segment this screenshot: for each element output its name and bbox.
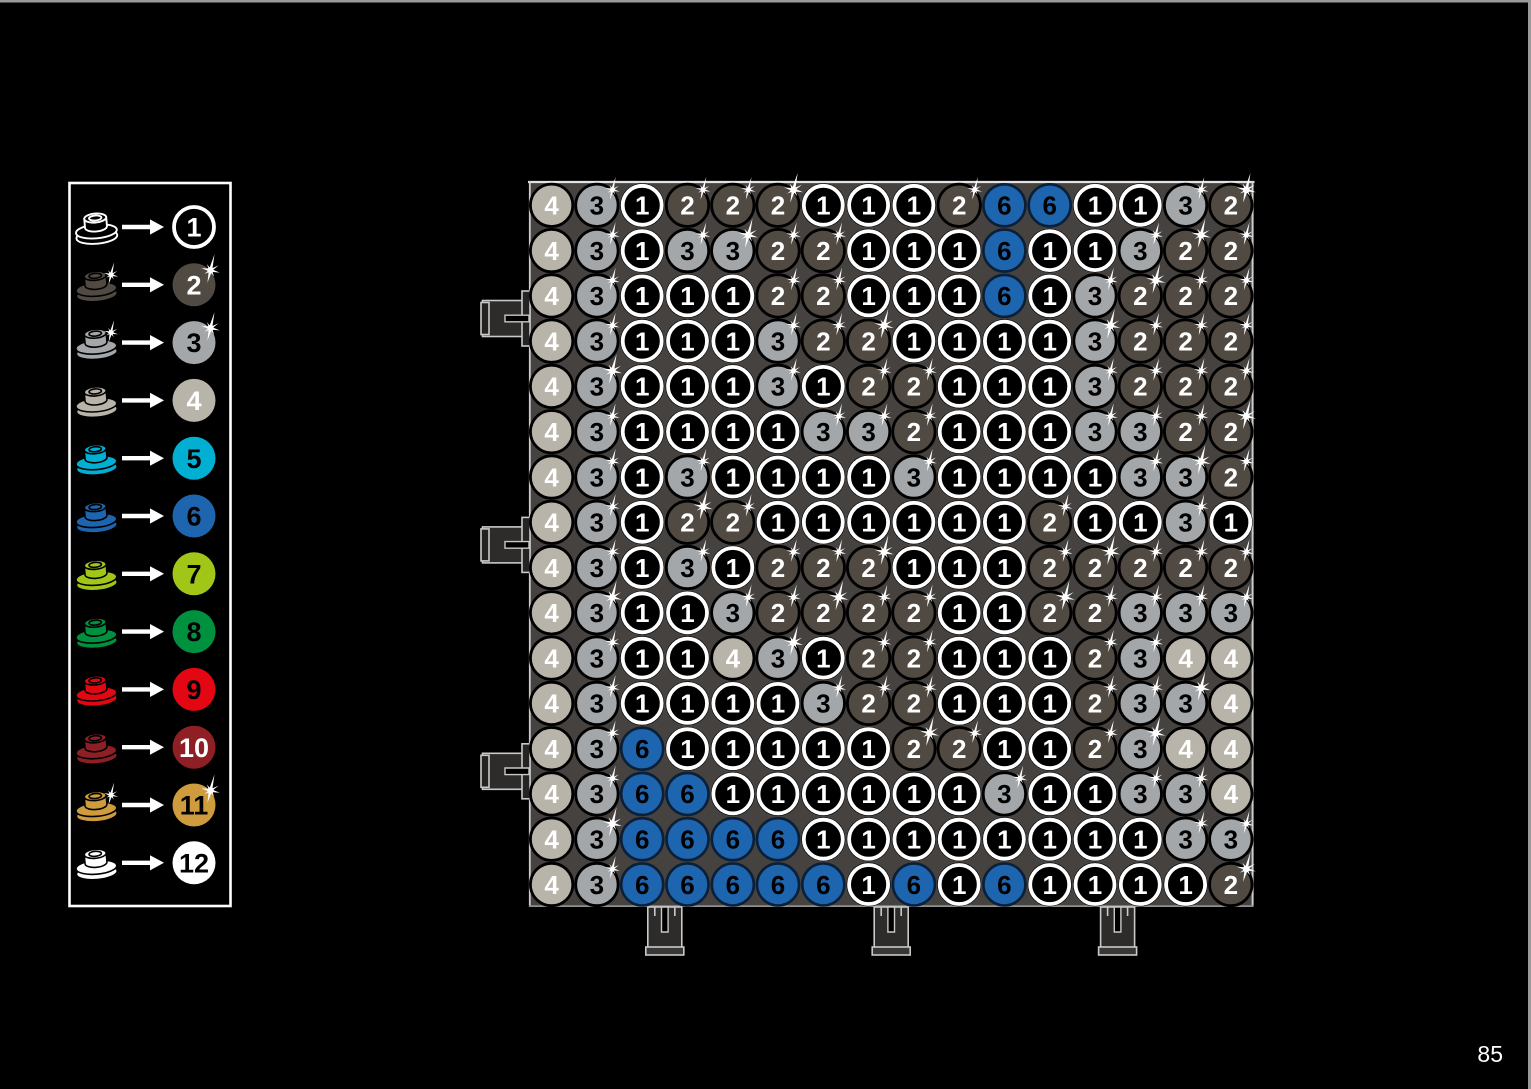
svg-text:2: 2: [861, 689, 875, 719]
svg-text:1: 1: [635, 372, 649, 402]
svg-text:1: 1: [997, 462, 1011, 492]
svg-text:3: 3: [590, 417, 604, 447]
svg-text:6: 6: [186, 502, 201, 532]
svg-text:1: 1: [907, 281, 921, 311]
svg-text:2: 2: [1178, 281, 1192, 311]
svg-text:3: 3: [1178, 191, 1192, 221]
svg-text:1: 1: [1088, 191, 1102, 221]
svg-text:3: 3: [771, 643, 785, 673]
svg-text:3: 3: [1178, 779, 1192, 809]
svg-text:4: 4: [544, 825, 559, 855]
svg-text:1: 1: [771, 417, 785, 447]
svg-text:4: 4: [544, 870, 559, 900]
svg-text:1: 1: [997, 326, 1011, 356]
svg-text:1: 1: [952, 643, 966, 673]
svg-text:1: 1: [952, 281, 966, 311]
svg-text:3: 3: [680, 553, 694, 583]
svg-text:6: 6: [635, 870, 649, 900]
svg-text:1: 1: [861, 191, 875, 221]
svg-text:1: 1: [1042, 236, 1056, 266]
svg-text:1: 1: [1133, 191, 1147, 221]
svg-text:1: 1: [635, 462, 649, 492]
svg-text:4: 4: [544, 553, 559, 583]
svg-text:1: 1: [680, 372, 694, 402]
svg-text:3: 3: [1133, 689, 1147, 719]
svg-text:1: 1: [680, 281, 694, 311]
svg-text:1: 1: [997, 553, 1011, 583]
svg-text:1: 1: [816, 734, 830, 764]
svg-text:1: 1: [952, 326, 966, 356]
svg-text:1: 1: [1042, 281, 1056, 311]
svg-text:1: 1: [635, 326, 649, 356]
svg-text:2: 2: [1133, 326, 1147, 356]
svg-text:1: 1: [771, 689, 785, 719]
svg-text:2: 2: [1133, 372, 1147, 402]
svg-text:3: 3: [590, 462, 604, 492]
svg-text:1: 1: [635, 281, 649, 311]
svg-text:2: 2: [1224, 372, 1238, 402]
svg-text:2: 2: [1224, 281, 1238, 311]
svg-text:1: 1: [635, 598, 649, 628]
svg-text:4: 4: [1224, 643, 1239, 673]
svg-text:1: 1: [635, 236, 649, 266]
svg-text:2: 2: [1224, 870, 1238, 900]
svg-text:6: 6: [997, 191, 1011, 221]
svg-text:1: 1: [997, 734, 1011, 764]
svg-text:2: 2: [680, 508, 694, 538]
svg-text:3: 3: [726, 236, 740, 266]
svg-text:9: 9: [186, 675, 201, 705]
svg-text:3: 3: [1133, 734, 1147, 764]
svg-text:4: 4: [544, 191, 559, 221]
svg-text:1: 1: [997, 417, 1011, 447]
svg-text:2: 2: [907, 689, 921, 719]
svg-text:3: 3: [1178, 508, 1192, 538]
svg-text:3: 3: [1178, 825, 1192, 855]
svg-text:2: 2: [816, 326, 830, 356]
svg-text:4: 4: [544, 689, 559, 719]
svg-text:1: 1: [907, 553, 921, 583]
svg-text:1: 1: [1042, 462, 1056, 492]
svg-text:1: 1: [816, 643, 830, 673]
svg-text:3: 3: [590, 508, 604, 538]
svg-text:2: 2: [816, 553, 830, 583]
svg-text:6: 6: [997, 236, 1011, 266]
svg-text:1: 1: [816, 825, 830, 855]
svg-text:2: 2: [1133, 553, 1147, 583]
svg-text:6: 6: [726, 870, 740, 900]
svg-text:1: 1: [952, 508, 966, 538]
svg-text:1: 1: [861, 734, 875, 764]
svg-text:3: 3: [771, 326, 785, 356]
svg-text:1: 1: [726, 417, 740, 447]
svg-text:4: 4: [544, 734, 559, 764]
svg-text:2: 2: [186, 270, 201, 300]
svg-text:1: 1: [1042, 372, 1056, 402]
svg-text:1: 1: [1133, 508, 1147, 538]
svg-text:3: 3: [1178, 689, 1192, 719]
svg-text:4: 4: [544, 779, 559, 809]
svg-text:3: 3: [590, 825, 604, 855]
svg-text:3: 3: [1133, 779, 1147, 809]
svg-text:6: 6: [997, 870, 1011, 900]
svg-text:2: 2: [1042, 598, 1056, 628]
svg-text:6: 6: [907, 870, 921, 900]
svg-text:2: 2: [816, 598, 830, 628]
svg-text:3: 3: [1178, 462, 1192, 492]
svg-text:3: 3: [1133, 598, 1147, 628]
svg-text:4: 4: [186, 386, 201, 416]
svg-text:3: 3: [680, 462, 694, 492]
svg-text:4: 4: [544, 372, 559, 402]
svg-text:1: 1: [907, 779, 921, 809]
svg-text:3: 3: [907, 462, 921, 492]
svg-text:2: 2: [771, 191, 785, 221]
svg-text:2: 2: [771, 236, 785, 266]
svg-text:2: 2: [771, 553, 785, 583]
svg-text:2: 2: [726, 191, 740, 221]
svg-text:2: 2: [816, 236, 830, 266]
svg-text:2: 2: [1042, 553, 1056, 583]
svg-text:6: 6: [1042, 191, 1056, 221]
svg-text:3: 3: [1133, 236, 1147, 266]
svg-text:1: 1: [186, 213, 201, 243]
svg-text:2: 2: [680, 191, 694, 221]
svg-text:6: 6: [635, 734, 649, 764]
svg-text:1: 1: [1178, 870, 1192, 900]
svg-text:1: 1: [816, 508, 830, 538]
svg-text:8: 8: [186, 617, 201, 647]
svg-text:1: 1: [726, 553, 740, 583]
svg-text:1: 1: [997, 643, 1011, 673]
svg-text:1: 1: [952, 553, 966, 583]
svg-text:1: 1: [861, 825, 875, 855]
svg-text:4: 4: [544, 417, 559, 447]
svg-text:1: 1: [726, 734, 740, 764]
svg-text:1: 1: [726, 779, 740, 809]
svg-text:2: 2: [1088, 553, 1102, 583]
svg-text:7: 7: [186, 559, 201, 589]
svg-text:85: 85: [1477, 1041, 1503, 1067]
svg-text:3: 3: [186, 328, 201, 358]
svg-text:1: 1: [1042, 734, 1056, 764]
svg-text:1: 1: [1133, 825, 1147, 855]
svg-text:2: 2: [1088, 734, 1102, 764]
svg-text:4: 4: [1178, 734, 1193, 764]
svg-text:1: 1: [952, 870, 966, 900]
svg-text:1: 1: [861, 779, 875, 809]
svg-text:1: 1: [771, 779, 785, 809]
svg-text:2: 2: [1224, 462, 1238, 492]
svg-text:1: 1: [1042, 870, 1056, 900]
svg-text:1: 1: [952, 372, 966, 402]
svg-text:6: 6: [635, 779, 649, 809]
svg-text:3: 3: [590, 598, 604, 628]
svg-text:2: 2: [1042, 508, 1056, 538]
svg-text:1: 1: [635, 191, 649, 221]
svg-text:2: 2: [907, 372, 921, 402]
svg-text:2: 2: [907, 643, 921, 673]
svg-text:1: 1: [907, 191, 921, 221]
svg-text:3: 3: [816, 417, 830, 447]
svg-text:2: 2: [861, 553, 875, 583]
svg-text:4: 4: [544, 598, 559, 628]
svg-text:4: 4: [726, 643, 741, 673]
svg-text:1: 1: [726, 326, 740, 356]
svg-text:3: 3: [816, 689, 830, 719]
svg-text:1: 1: [1042, 326, 1056, 356]
svg-text:1: 1: [1042, 417, 1056, 447]
svg-text:4: 4: [1224, 779, 1239, 809]
svg-text:3: 3: [590, 326, 604, 356]
svg-text:2: 2: [952, 734, 966, 764]
svg-text:6: 6: [680, 779, 694, 809]
svg-text:6: 6: [771, 825, 785, 855]
svg-text:1: 1: [635, 417, 649, 447]
svg-text:6: 6: [680, 825, 694, 855]
svg-text:2: 2: [907, 598, 921, 628]
svg-text:2: 2: [861, 326, 875, 356]
svg-text:1: 1: [861, 462, 875, 492]
svg-text:1: 1: [952, 598, 966, 628]
svg-text:11: 11: [180, 791, 209, 821]
svg-text:2: 2: [1088, 598, 1102, 628]
svg-text:1: 1: [771, 462, 785, 492]
svg-text:1: 1: [1088, 870, 1102, 900]
svg-text:4: 4: [1224, 734, 1239, 764]
svg-text:2: 2: [771, 598, 785, 628]
svg-text:3: 3: [590, 553, 604, 583]
svg-text:1: 1: [816, 372, 830, 402]
svg-text:6: 6: [726, 825, 740, 855]
svg-text:1: 1: [1042, 689, 1056, 719]
svg-text:1: 1: [997, 689, 1011, 719]
svg-text:4: 4: [544, 462, 559, 492]
svg-text:1: 1: [771, 734, 785, 764]
svg-text:1: 1: [952, 779, 966, 809]
svg-text:3: 3: [1088, 417, 1102, 447]
svg-text:3: 3: [1088, 372, 1102, 402]
svg-text:1: 1: [907, 825, 921, 855]
svg-text:2: 2: [907, 734, 921, 764]
svg-text:2: 2: [861, 598, 875, 628]
svg-text:3: 3: [590, 870, 604, 900]
svg-text:3: 3: [1224, 825, 1238, 855]
svg-text:1: 1: [1042, 825, 1056, 855]
svg-text:3: 3: [861, 417, 875, 447]
svg-text:1: 1: [635, 508, 649, 538]
svg-text:2: 2: [726, 508, 740, 538]
svg-text:1: 1: [1088, 236, 1102, 266]
svg-text:1: 1: [952, 236, 966, 266]
svg-text:2: 2: [771, 281, 785, 311]
svg-text:1: 1: [997, 508, 1011, 538]
svg-text:3: 3: [1088, 281, 1102, 311]
svg-text:1: 1: [680, 734, 694, 764]
svg-text:2: 2: [1224, 191, 1238, 221]
svg-text:4: 4: [1224, 689, 1239, 719]
svg-text:3: 3: [726, 598, 740, 628]
svg-text:1: 1: [726, 372, 740, 402]
svg-text:2: 2: [816, 281, 830, 311]
svg-text:3: 3: [1224, 598, 1238, 628]
svg-text:3: 3: [590, 372, 604, 402]
svg-text:4: 4: [544, 508, 559, 538]
svg-text:3: 3: [680, 236, 694, 266]
svg-text:1: 1: [816, 779, 830, 809]
svg-text:4: 4: [1178, 643, 1193, 673]
svg-text:2: 2: [952, 191, 966, 221]
svg-text:1: 1: [726, 462, 740, 492]
svg-text:1: 1: [1088, 779, 1102, 809]
svg-text:3: 3: [590, 643, 604, 673]
svg-text:1: 1: [997, 598, 1011, 628]
svg-text:1: 1: [726, 689, 740, 719]
svg-text:1: 1: [816, 191, 830, 221]
svg-text:12: 12: [179, 848, 209, 878]
svg-text:1: 1: [861, 870, 875, 900]
svg-text:5: 5: [186, 444, 201, 474]
svg-text:2: 2: [1224, 236, 1238, 266]
svg-text:2: 2: [1088, 689, 1102, 719]
svg-text:3: 3: [997, 779, 1011, 809]
svg-text:10: 10: [179, 733, 209, 763]
svg-text:1: 1: [1088, 825, 1102, 855]
svg-text:3: 3: [1088, 326, 1102, 356]
svg-text:2: 2: [907, 417, 921, 447]
svg-text:6: 6: [680, 870, 694, 900]
svg-text:1: 1: [952, 462, 966, 492]
svg-text:1: 1: [680, 598, 694, 628]
svg-text:3: 3: [1133, 643, 1147, 673]
svg-text:1: 1: [952, 417, 966, 447]
svg-text:1: 1: [861, 281, 875, 311]
svg-text:3: 3: [590, 236, 604, 266]
svg-text:4: 4: [544, 326, 559, 356]
svg-text:3: 3: [590, 689, 604, 719]
svg-text:2: 2: [1178, 236, 1192, 266]
svg-text:6: 6: [816, 870, 830, 900]
svg-text:2: 2: [861, 372, 875, 402]
svg-text:4: 4: [544, 281, 559, 311]
svg-text:1: 1: [1133, 870, 1147, 900]
svg-text:3: 3: [590, 191, 604, 221]
svg-text:2: 2: [1088, 643, 1102, 673]
svg-text:1: 1: [1088, 508, 1102, 538]
svg-text:1: 1: [726, 281, 740, 311]
svg-text:1: 1: [907, 326, 921, 356]
svg-text:1: 1: [635, 553, 649, 583]
svg-text:1: 1: [1224, 508, 1238, 538]
svg-text:1: 1: [1088, 462, 1102, 492]
svg-text:2: 2: [1224, 326, 1238, 356]
svg-text:1: 1: [997, 372, 1011, 402]
svg-text:2: 2: [1133, 281, 1147, 311]
svg-text:3: 3: [590, 281, 604, 311]
svg-text:2: 2: [1178, 417, 1192, 447]
svg-text:1: 1: [952, 825, 966, 855]
svg-text:3: 3: [1133, 462, 1147, 492]
svg-text:1: 1: [680, 326, 694, 356]
svg-text:1: 1: [680, 689, 694, 719]
svg-text:1: 1: [997, 825, 1011, 855]
svg-text:1: 1: [680, 417, 694, 447]
svg-text:1: 1: [635, 689, 649, 719]
svg-text:2: 2: [1224, 417, 1238, 447]
svg-text:1: 1: [952, 689, 966, 719]
svg-text:6: 6: [771, 870, 785, 900]
svg-text:6: 6: [997, 281, 1011, 311]
svg-text:1: 1: [816, 462, 830, 492]
svg-text:1: 1: [771, 508, 785, 538]
svg-text:3: 3: [1178, 598, 1192, 628]
svg-text:3: 3: [590, 779, 604, 809]
svg-text:1: 1: [907, 508, 921, 538]
svg-text:2: 2: [861, 643, 875, 673]
svg-text:3: 3: [1133, 417, 1147, 447]
svg-text:2: 2: [1224, 553, 1238, 583]
svg-text:4: 4: [544, 236, 559, 266]
svg-text:1: 1: [861, 508, 875, 538]
svg-text:1: 1: [680, 643, 694, 673]
svg-text:1: 1: [861, 236, 875, 266]
svg-text:2: 2: [1178, 372, 1192, 402]
svg-text:2: 2: [1178, 326, 1192, 356]
svg-text:6: 6: [635, 825, 649, 855]
svg-text:2: 2: [1178, 553, 1192, 583]
svg-text:1: 1: [1042, 779, 1056, 809]
svg-text:3: 3: [590, 734, 604, 764]
svg-text:1: 1: [907, 236, 921, 266]
svg-text:1: 1: [635, 643, 649, 673]
svg-text:4: 4: [544, 643, 559, 673]
svg-text:3: 3: [771, 372, 785, 402]
svg-text:1: 1: [1042, 643, 1056, 673]
